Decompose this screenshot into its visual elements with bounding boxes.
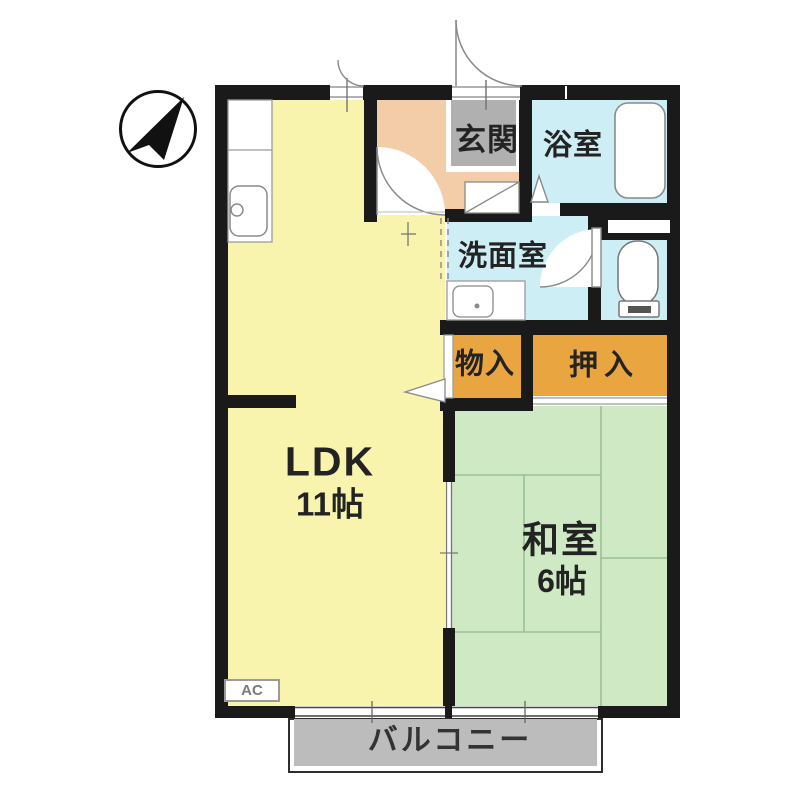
wall-top-mid — [363, 85, 452, 100]
wall-kitchen-stub — [228, 395, 296, 408]
wall-washroom-toilet-upper — [588, 216, 601, 230]
wall-left — [215, 85, 228, 718]
north-arrow-icon — [117, 88, 199, 170]
wall-bottom-right — [598, 706, 680, 718]
bathroom-label: 浴室 — [543, 132, 603, 161]
wall-storage-top — [440, 320, 680, 335]
room-toilet — [601, 236, 667, 320]
toilet-top-slot — [608, 220, 670, 233]
wall-top-left — [215, 85, 330, 100]
wall-storage-divider — [521, 335, 533, 400]
balcony-label: バルコニー — [368, 726, 532, 756]
closet-sliding-door — [533, 397, 667, 406]
genkan-label: 玄関 — [455, 125, 519, 156]
wall-ldk-washitsu-upper — [443, 400, 455, 482]
washitsu-label: 和室 — [522, 522, 600, 559]
ldk-label: LDK — [285, 442, 375, 483]
ldk-size-label: 11帖 — [296, 488, 364, 521]
wall-hall-left — [364, 100, 377, 222]
closet-label: 押入 — [563, 352, 639, 381]
wall-right — [667, 85, 680, 718]
wall-ldk-washitsu-lower — [443, 628, 455, 718]
wall-top-right — [520, 85, 680, 100]
storage-label: 物入 — [455, 351, 515, 380]
ac-label: AC — [241, 683, 263, 698]
wall-genkan-bath — [519, 100, 532, 216]
wall-bottom-left — [215, 706, 295, 718]
washitsu-size-label: 6帖 — [537, 565, 587, 597]
ac-unit: AC — [224, 679, 280, 702]
floor-plan: AC 玄関 浴室 洗面室 物入 押入 LDK 11帖 和室 6帖 バルコニー — [0, 0, 800, 800]
washroom-label: 洗面室 — [458, 243, 548, 272]
